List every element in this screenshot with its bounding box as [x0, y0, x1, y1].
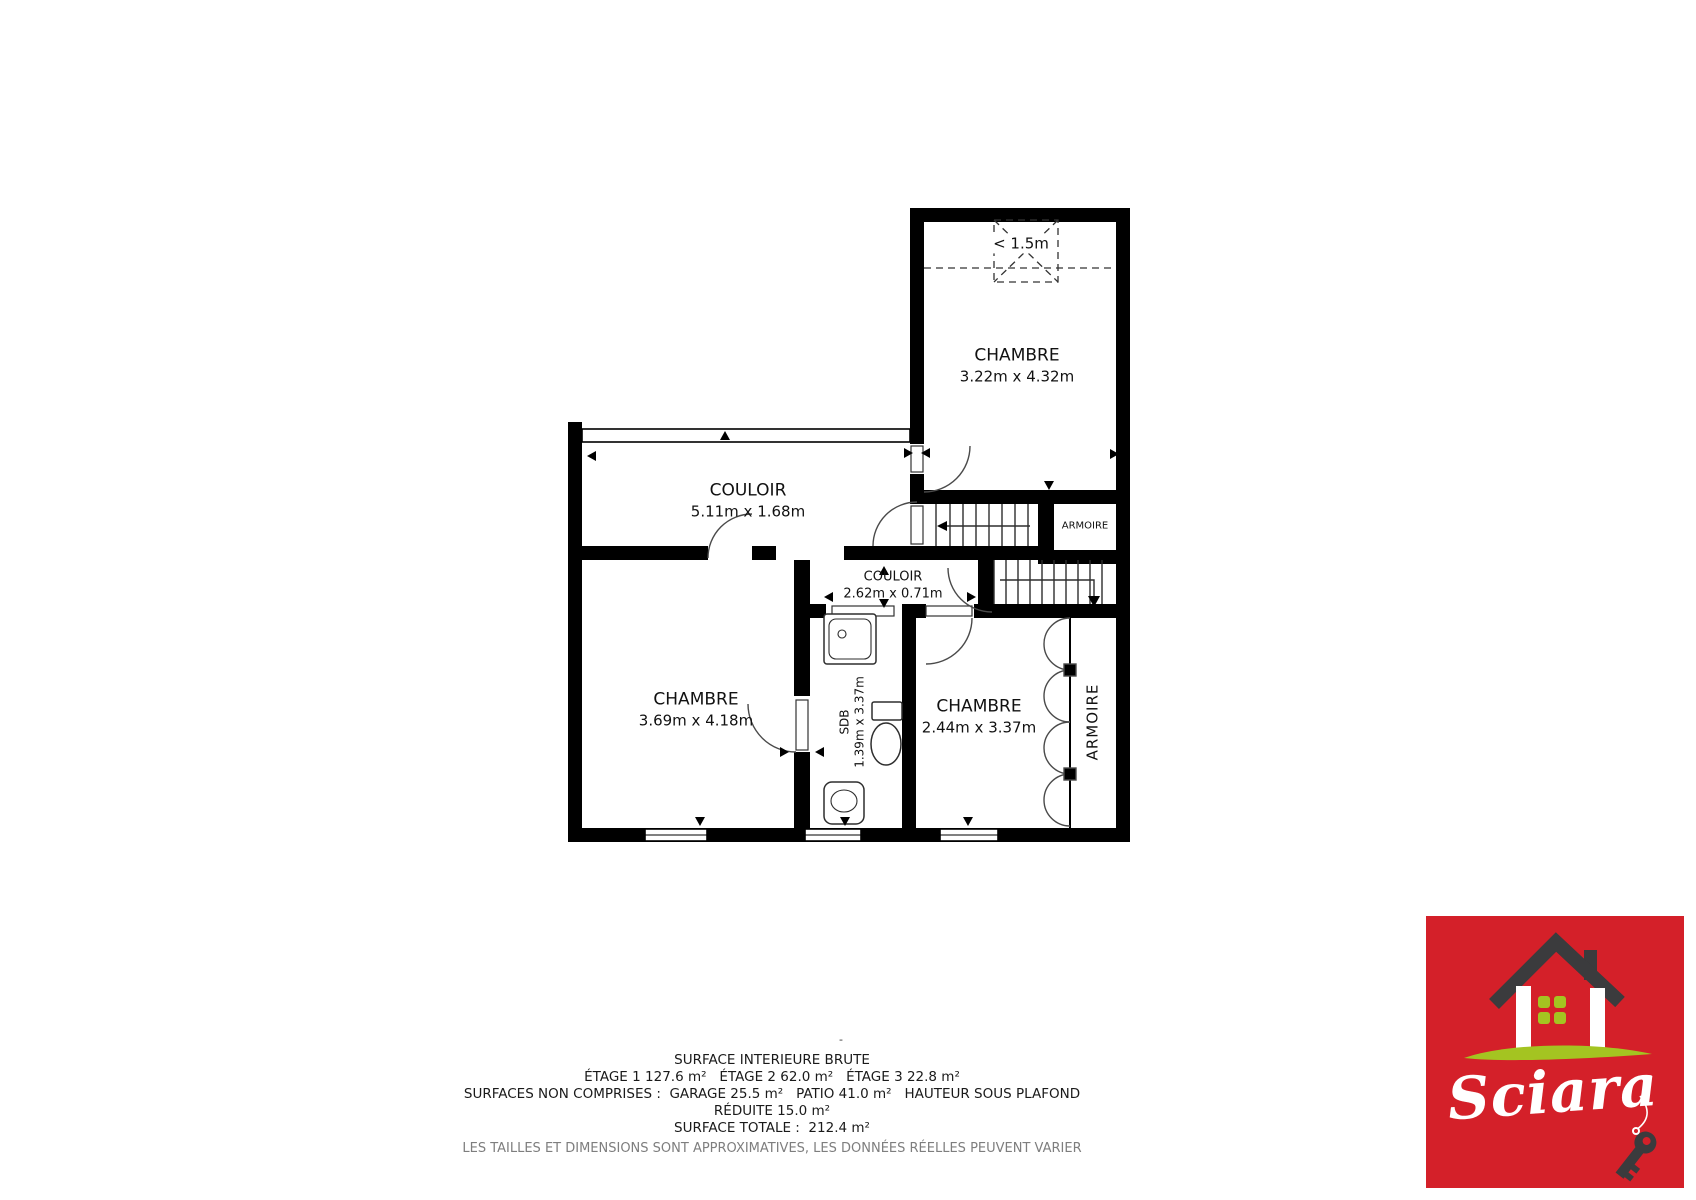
room-dims: 2.62m x 0.71m: [843, 586, 942, 603]
room-label-sdb: SDB 1.39m x 3.37m: [838, 676, 869, 768]
summary-floors: ÉTAGE 1 127.6 m² ÉTAGE 2 62.0 m² ÉTAGE 3…: [372, 1069, 1172, 1086]
wall-segment: [844, 546, 1040, 560]
wall-segment: [916, 604, 926, 618]
triangle-marker: [1044, 481, 1054, 490]
shower-tray-inner: [829, 619, 871, 659]
floorplan-page: Sciara CHAMBRE 3.22m x 4.32m COULOIR 5.1…: [0, 0, 1696, 1200]
wall-segment: [752, 546, 776, 560]
door-leaf: [926, 606, 972, 616]
window-pane: [1538, 996, 1550, 1008]
center-dash-mark: -: [839, 1033, 843, 1047]
room-dims: 1.39m x 3.37m: [853, 676, 868, 768]
room-name: SDB: [838, 676, 853, 768]
triangle-marker: [695, 817, 705, 826]
wall-segment: [974, 604, 1116, 618]
room-name: CHAMBRE: [922, 697, 1036, 719]
door-arc: [748, 704, 796, 752]
room-dims: 3.22m x 4.32m: [960, 367, 1074, 386]
wardrobe-doors: [1044, 618, 1076, 828]
summary-excluded-line2: RÉDUITE 15.0 m²: [372, 1103, 1172, 1120]
wall-segment: [1038, 504, 1054, 564]
wall-segment: [978, 546, 994, 604]
room-label-chambre-top: CHAMBRE 3.22m x 4.32m: [960, 346, 1074, 387]
wall-segment: [794, 604, 826, 618]
wardrobe-hinge: [1064, 664, 1076, 676]
summary-disclaimer: LES TAILLES ET DIMENSIONS SONT APPROXIMA…: [372, 1140, 1172, 1157]
triangle-marker: [815, 747, 824, 757]
wall-segment: [902, 604, 916, 828]
closet-label-top: ARMOIRE: [1062, 521, 1109, 534]
wardrobe-hinge: [1064, 768, 1076, 780]
triangle-marker: [780, 747, 789, 757]
window-pane: [1554, 1012, 1566, 1024]
wardrobe-arc: [1044, 774, 1070, 826]
triangle-marker: [963, 817, 973, 826]
door-arc: [926, 618, 972, 664]
triangle-marker: [967, 592, 976, 602]
washbasin-bowl: [831, 790, 857, 812]
wall-segment: [568, 546, 582, 842]
wardrobe-arc: [1044, 722, 1070, 774]
wall-segment: [568, 546, 708, 560]
summary-title: SURFACE INTERIEURE BRUTE: [372, 1052, 1172, 1069]
window-pane: [1538, 1012, 1550, 1024]
room-name: COULOIR: [843, 569, 942, 586]
room-name: CHAMBRE: [960, 346, 1074, 368]
key-string-dot-center: [1634, 1129, 1638, 1133]
window-pane: [1554, 996, 1566, 1008]
stair-arrow-head-left: [937, 521, 947, 531]
low-ceiling-label: < 1.5m: [990, 234, 1052, 253]
room-dims: 5.11m x 1.68m: [691, 502, 805, 521]
wall-segment: [1054, 550, 1116, 564]
surface-summary: SURFACE INTERIEURE BRUTE ÉTAGE 1 127.6 m…: [372, 1052, 1172, 1157]
triangle-marker: [824, 592, 833, 602]
wall-segment: [568, 422, 582, 560]
wall-segment: [910, 474, 924, 504]
stair-arrow-shaft: [1000, 580, 1094, 596]
wall-segment: [924, 490, 1116, 504]
room-label-couloir-main: COULOIR 5.11m x 1.68m: [691, 481, 805, 522]
stair-treads-lower: [994, 560, 1102, 604]
shower-drain: [838, 630, 846, 638]
room-dims: 2.44m x 3.37m: [922, 718, 1036, 737]
triangle-marker: [587, 451, 596, 461]
room-name: COULOIR: [691, 481, 805, 503]
summary-total: SURFACE TOTALE : 212.4 m²: [372, 1120, 1172, 1137]
room-label-chambre-right: CHAMBRE 2.44m x 3.37m: [922, 697, 1036, 738]
wall-segment: [910, 208, 924, 444]
toilet-cistern: [872, 702, 902, 720]
summary-excluded-line1: SURFACES NON COMPRISES : GARAGE 25.5 m² …: [372, 1086, 1172, 1103]
stair-treads-upper: [936, 504, 1028, 546]
room-label-couloir-small: COULOIR 2.62m x 0.71m: [843, 569, 942, 602]
wall-segment: [1116, 208, 1130, 842]
logo-house-wall-left: [1516, 986, 1531, 1052]
door-arc: [924, 446, 970, 492]
toilet-bowl: [871, 723, 901, 765]
logo-house-wall-right: [1590, 988, 1605, 1048]
door-leaf: [911, 446, 923, 472]
room-name: CHAMBRE: [639, 690, 753, 712]
window-band: [582, 429, 910, 442]
wall-segment: [794, 560, 810, 696]
door-leaf: [911, 506, 923, 544]
closet-label-right: ARMOIRE: [1083, 684, 1102, 761]
agency-logo: Sciara: [1426, 916, 1684, 1188]
wardrobe-arc: [1044, 618, 1070, 670]
room-dims: 3.69m x 4.18m: [639, 711, 753, 730]
wardrobe-arc: [1044, 670, 1070, 722]
room-label-chambre-left: CHAMBRE 3.69m x 4.18m: [639, 690, 753, 731]
wall-segment: [794, 752, 810, 828]
door-leaf: [796, 700, 808, 750]
